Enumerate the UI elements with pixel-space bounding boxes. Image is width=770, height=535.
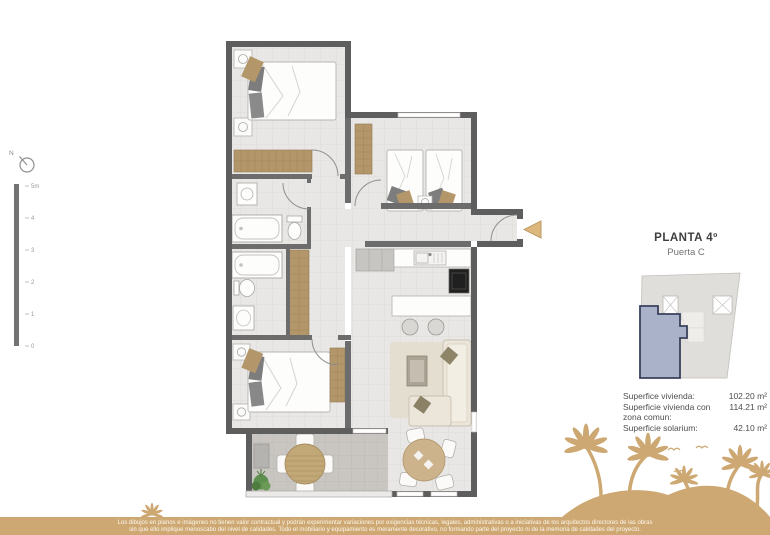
corridor-wardrobe <box>289 250 309 339</box>
entrance-arrow-icon <box>524 221 541 238</box>
washbasin <box>237 183 257 205</box>
svg-text:3: 3 <box>31 248 35 254</box>
surface-row: Superfice vivienda: 102.20 m² <box>623 391 767 402</box>
bathtub <box>232 215 282 242</box>
brochure-page: N 5m 4 3 2 1 0 <box>0 0 770 535</box>
dining-table <box>403 439 445 481</box>
svg-text:2: 2 <box>31 280 35 286</box>
stair-core-icon <box>713 296 732 314</box>
stair-core-icon <box>663 296 678 314</box>
terrace-railing <box>246 491 392 497</box>
svg-text:0: 0 <box>31 344 35 350</box>
kitchen-sink <box>414 251 446 265</box>
disclaimer-line: sin que ello implique menoscabo del nive… <box>0 527 770 535</box>
wooden-table <box>285 444 325 484</box>
surface-areas: Superfice vivienda: 102.20 m² Superficie… <box>623 391 767 433</box>
toilet <box>287 216 302 240</box>
north-label: N <box>9 150 14 157</box>
scale-bar: 5m 4 3 2 1 0 <box>14 184 39 350</box>
coffee-table <box>407 356 427 386</box>
bird-icons <box>668 446 708 472</box>
toilet <box>234 280 255 297</box>
disclaimer-band: Los dibujos en planos e imágenes no tien… <box>0 517 770 535</box>
terrace-slider-door <box>353 429 386 433</box>
svg-text:5m: 5m <box>31 184 39 190</box>
disclaimer-line: Los dibujos en planos e imágenes no tien… <box>0 520 770 528</box>
stool <box>428 319 444 335</box>
surface-row: Superficie vivienda con zona comun: 114.… <box>623 402 767 423</box>
building-key-plan <box>628 268 768 386</box>
svg-text:1: 1 <box>31 312 35 318</box>
living-room <box>390 340 471 426</box>
wardrobe <box>355 124 372 174</box>
surface-row: Superficie solarium: 42.10 m² <box>623 423 767 434</box>
wardrobe <box>330 348 345 402</box>
bathtub <box>232 252 282 278</box>
master-bedroom <box>233 344 345 420</box>
pillow <box>249 92 265 118</box>
stool <box>402 319 418 335</box>
sink <box>233 306 254 330</box>
kitchen-unit <box>356 249 394 271</box>
highlighted-apartment <box>640 306 687 378</box>
nightstand <box>234 118 252 136</box>
terrace-chair <box>254 444 269 468</box>
kitchen-island <box>392 296 471 316</box>
wardrobe <box>234 150 312 172</box>
page-subtitle: Puerta C <box>596 247 770 258</box>
nightstand <box>233 404 250 420</box>
balcony-door <box>472 412 476 432</box>
info-panel: PLANTA 4º Puerta C <box>596 232 770 258</box>
page-title: PLANTA 4º <box>596 232 770 244</box>
north-compass-icon: N <box>9 150 34 172</box>
palm-trees-graphic <box>562 424 770 518</box>
svg-text:4: 4 <box>31 216 35 222</box>
